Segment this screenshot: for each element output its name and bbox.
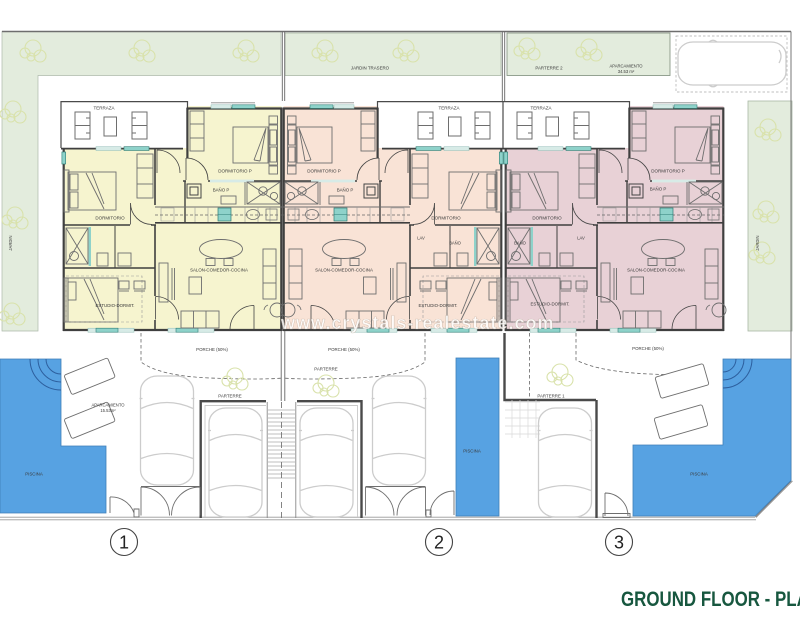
svg-text:JARDIN: JARDIN bbox=[8, 235, 13, 250]
svg-text:SALON-COMEDOR-COCINA: SALON-COMEDOR-COCINA bbox=[627, 268, 685, 273]
svg-text:DORMITORIO P: DORMITORIO P bbox=[218, 169, 251, 174]
svg-text:APARCAMIENTO: APARCAMIENTO bbox=[91, 403, 125, 408]
svg-text:BAÑO: BAÑO bbox=[449, 241, 462, 246]
svg-text:PORCHE (50%): PORCHE (50%) bbox=[196, 347, 228, 352]
svg-text:TERRAZA: TERRAZA bbox=[530, 106, 551, 111]
svg-text:PISCINA: PISCINA bbox=[463, 449, 481, 454]
svg-text:PISCINA: PISCINA bbox=[25, 472, 43, 477]
svg-text:2: 2 bbox=[434, 533, 444, 553]
svg-text:LAV: LAV bbox=[417, 236, 425, 241]
svg-text:BAÑO P: BAÑO P bbox=[650, 187, 667, 192]
svg-text:3: 3 bbox=[614, 533, 624, 553]
svg-text:BAÑO P: BAÑO P bbox=[337, 188, 354, 193]
svg-text:SALON-COMEDOR-COCINA: SALON-COMEDOR-COCINA bbox=[315, 268, 373, 273]
svg-text:PORCHE (50%): PORCHE (50%) bbox=[632, 346, 664, 351]
svg-text:DORMITORIO: DORMITORIO bbox=[431, 216, 461, 221]
svg-text:PARTERRE: PARTERRE bbox=[218, 394, 242, 399]
svg-text:DORMITORIO: DORMITORIO bbox=[95, 216, 125, 221]
svg-text:DORMITORIO P: DORMITORIO P bbox=[307, 169, 340, 174]
svg-text:TERRAZA: TERRAZA bbox=[438, 106, 459, 111]
svg-text:www.crystals-realestate.com: www.crystals-realestate.com bbox=[280, 313, 554, 333]
svg-text:1: 1 bbox=[119, 533, 129, 553]
svg-text:PARTERRE 1: PARTERRE 1 bbox=[537, 394, 565, 399]
svg-text:PISCINA: PISCINA bbox=[690, 472, 708, 477]
svg-text:34.53 m²: 34.53 m² bbox=[618, 69, 635, 74]
svg-text:ESTUDIO-DORMIT.: ESTUDIO-DORMIT. bbox=[530, 302, 569, 307]
svg-text:GROUND FLOOR - PLAN: GROUND FLOOR - PLAN bbox=[621, 587, 800, 611]
svg-text:DORMITORIO: DORMITORIO bbox=[532, 216, 562, 221]
svg-text:BAÑO: BAÑO bbox=[514, 241, 527, 246]
svg-text:JARDIN TRASERO: JARDIN TRASERO bbox=[351, 66, 390, 71]
svg-text:JARDIN: JARDIN bbox=[755, 235, 760, 250]
svg-text:LAV: LAV bbox=[577, 236, 585, 241]
svg-text:BAÑO P: BAÑO P bbox=[213, 188, 230, 193]
svg-text:PARTERRE: PARTERRE bbox=[314, 367, 338, 372]
svg-text:ESTUDIO-DORMIT.: ESTUDIO-DORMIT. bbox=[95, 303, 134, 308]
svg-text:DORMITORIO P: DORMITORIO P bbox=[651, 169, 684, 174]
svg-text:SALON-COMEDOR-COCINA: SALON-COMEDOR-COCINA bbox=[190, 268, 248, 273]
svg-text:15.53m²: 15.53m² bbox=[100, 408, 116, 413]
svg-text:TERRAZA: TERRAZA bbox=[93, 106, 114, 111]
svg-text:PORCHE (50%): PORCHE (50%) bbox=[328, 347, 360, 352]
svg-text:ESTUDIO-DORMIT.: ESTUDIO-DORMIT. bbox=[418, 303, 457, 308]
svg-text:APARCAMIENTO: APARCAMIENTO bbox=[609, 64, 643, 69]
svg-text:PARTERRE 2: PARTERRE 2 bbox=[535, 66, 563, 71]
